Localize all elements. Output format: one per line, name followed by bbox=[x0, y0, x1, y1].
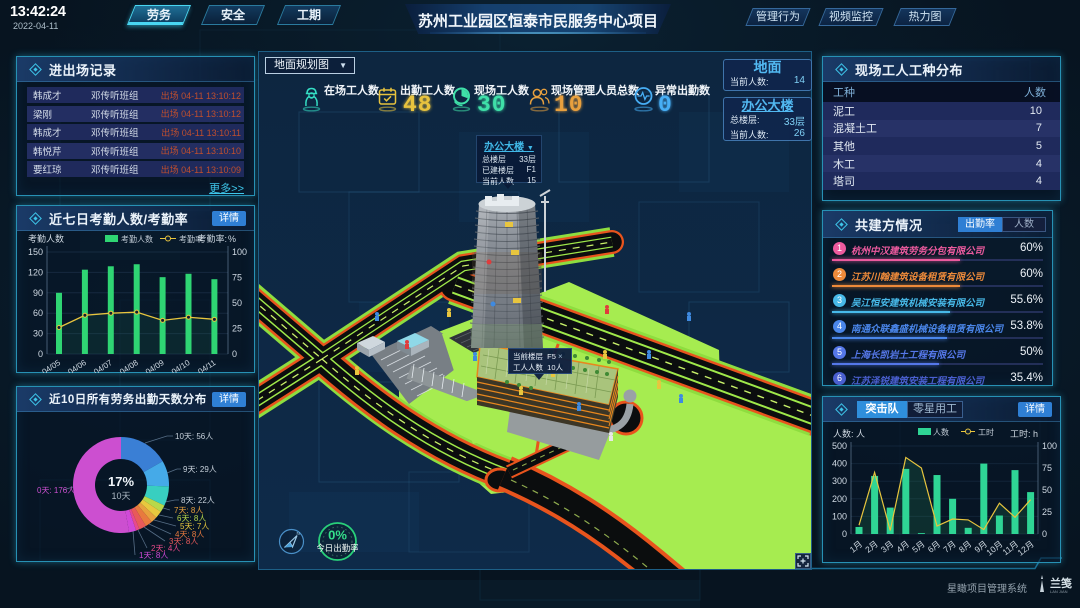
svg-text:9天: 29人: 9天: 29人 bbox=[183, 465, 217, 474]
svg-text:120: 120 bbox=[28, 267, 43, 277]
svg-text:0: 0 bbox=[38, 349, 43, 359]
svg-text:0%: 0% bbox=[328, 528, 347, 543]
svg-text:工时: 工时 bbox=[978, 427, 994, 437]
svg-text:1天: 8人: 1天: 8人 bbox=[139, 551, 168, 560]
svg-text:50: 50 bbox=[232, 298, 242, 308]
svg-text:100: 100 bbox=[232, 247, 247, 257]
svg-text:17%: 17% bbox=[108, 474, 134, 489]
svg-text:90: 90 bbox=[33, 288, 43, 298]
svg-text:今日出勤率: 今日出勤率 bbox=[317, 543, 358, 553]
svg-text:100: 100 bbox=[832, 511, 847, 521]
svg-text:100: 100 bbox=[1042, 441, 1057, 451]
svg-text:300: 300 bbox=[832, 476, 847, 486]
svg-text:人数: 人: 人数: 人 bbox=[833, 428, 865, 439]
svg-text:8月: 8月 bbox=[957, 539, 974, 555]
svg-text:10天: 10天 bbox=[111, 491, 130, 501]
svg-text:200: 200 bbox=[832, 494, 847, 504]
svg-text:考勤人数: 考勤人数 bbox=[121, 234, 153, 244]
svg-text:1月: 1月 bbox=[848, 539, 865, 555]
svg-text:400: 400 bbox=[832, 459, 847, 469]
svg-text:3月: 3月 bbox=[879, 539, 896, 555]
svg-text:0: 0 bbox=[842, 529, 847, 539]
svg-text:兰笺: 兰笺 bbox=[1050, 576, 1072, 590]
svg-text:10天: 56人: 10天: 56人 bbox=[175, 432, 213, 441]
svg-text:工时: h: 工时: h bbox=[1010, 428, 1038, 439]
svg-text:30: 30 bbox=[33, 329, 43, 339]
svg-text:75: 75 bbox=[232, 273, 242, 283]
svg-text:500: 500 bbox=[832, 441, 847, 451]
svg-text:04/07: 04/07 bbox=[92, 358, 114, 373]
svg-text:7月: 7月 bbox=[941, 539, 958, 555]
svg-text:75: 75 bbox=[1042, 463, 1052, 473]
svg-text:04/09: 04/09 bbox=[144, 358, 166, 373]
svg-text:考勤率: 考勤率 bbox=[179, 234, 203, 244]
svg-text:60: 60 bbox=[33, 308, 43, 318]
svg-text:25: 25 bbox=[1042, 507, 1052, 517]
svg-text:04/06: 04/06 bbox=[66, 358, 88, 373]
svg-text:8天: 22人: 8天: 22人 bbox=[181, 496, 215, 505]
svg-text:人数: 人数 bbox=[933, 427, 949, 437]
svg-text:N: N bbox=[297, 531, 300, 536]
svg-text:0: 0 bbox=[232, 349, 237, 359]
svg-text:04/10: 04/10 bbox=[170, 358, 192, 373]
svg-text:12月: 12月 bbox=[1016, 539, 1036, 558]
svg-text:50: 50 bbox=[1042, 485, 1052, 495]
svg-text:04/08: 04/08 bbox=[118, 358, 140, 373]
svg-text:0: 0 bbox=[1042, 529, 1047, 539]
svg-text:0天: 176人: 0天: 176人 bbox=[37, 486, 75, 495]
svg-text:04/11: 04/11 bbox=[196, 358, 218, 373]
svg-text:5月: 5月 bbox=[910, 539, 927, 555]
svg-text:%: % bbox=[228, 234, 236, 244]
svg-text:04/05: 04/05 bbox=[40, 358, 62, 373]
svg-text:考勤人数: 考勤人数 bbox=[28, 233, 64, 244]
svg-text:25: 25 bbox=[232, 324, 242, 334]
svg-text:LAN JIAN: LAN JIAN bbox=[1050, 589, 1068, 594]
svg-text:4月: 4月 bbox=[894, 539, 911, 555]
svg-text:6月: 6月 bbox=[926, 539, 943, 555]
svg-text:2月: 2月 bbox=[863, 539, 880, 555]
svg-text:150: 150 bbox=[28, 247, 43, 257]
